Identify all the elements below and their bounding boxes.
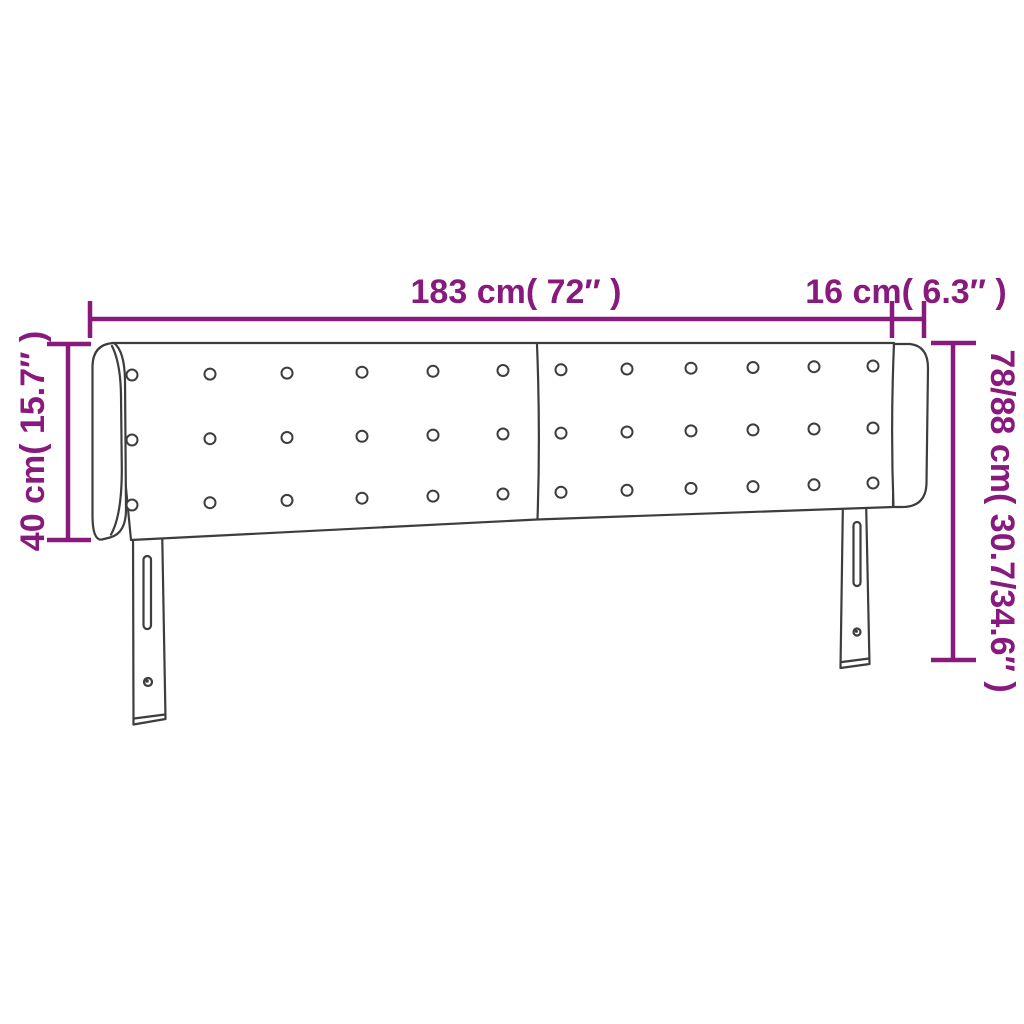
width-dimension-label: 183 cm( 72″ ) xyxy=(411,273,622,311)
total-height-dimension: 78/88 cm( 30.7/34.6″ ) xyxy=(931,343,1021,693)
tufting-button xyxy=(622,427,633,438)
tufting-button xyxy=(556,428,567,439)
tufting-button xyxy=(868,478,879,489)
tufting-button xyxy=(205,369,216,380)
tufting-button xyxy=(357,367,368,378)
tufting-button xyxy=(357,493,368,504)
tufting-button xyxy=(686,483,697,494)
tufting-button xyxy=(127,370,138,381)
tufting-button xyxy=(868,423,879,434)
tufting-button xyxy=(127,500,138,511)
tufting-button xyxy=(428,430,439,441)
headboard-height-label: 40 cm( 15.7″ ) xyxy=(14,331,52,551)
tufting-button xyxy=(868,361,879,372)
headboard-drawing xyxy=(93,343,929,725)
tufting-button xyxy=(556,364,567,375)
tufting-button xyxy=(282,432,293,443)
tufting-button xyxy=(622,485,633,496)
tufting-button xyxy=(428,491,439,502)
total-height-label: 78/88 cm( 30.7/34.6″ ) xyxy=(983,349,1021,692)
tufting-button xyxy=(357,431,368,442)
width-dimension: 183 cm( 72″ ) 16 cm( 6.3″ ) xyxy=(90,273,1007,338)
tufting-button xyxy=(748,481,759,492)
tufting-button xyxy=(809,361,820,372)
tufting-button xyxy=(498,489,509,500)
tufting-button xyxy=(748,424,759,435)
right-wing-panel xyxy=(892,344,928,507)
tufting-button xyxy=(809,479,820,490)
left-leg-body xyxy=(133,523,166,725)
left-leg xyxy=(133,523,166,725)
tufting-button xyxy=(428,366,439,377)
tufting-button xyxy=(686,425,697,436)
right-leg-hole-center xyxy=(855,630,858,633)
left-leg-hole-center xyxy=(145,679,149,683)
tufting-button xyxy=(748,362,759,373)
tufting-button xyxy=(498,365,509,376)
tufting-button xyxy=(205,433,216,444)
dimension-diagram: 183 cm( 72″ ) 16 cm( 6.3″ ) 40 cm( 15.7″… xyxy=(0,0,1024,1024)
tufting-button xyxy=(809,424,820,435)
tufting-button xyxy=(686,363,697,374)
tufting-button xyxy=(205,497,216,508)
tufting-button xyxy=(498,429,509,440)
tufting-button xyxy=(127,435,138,446)
right-leg xyxy=(841,498,870,668)
tufting-button xyxy=(556,487,567,498)
tufting-button xyxy=(282,368,293,379)
tufting-button xyxy=(622,364,633,375)
tufting-button xyxy=(282,495,293,506)
diagram-canvas: 183 cm( 72″ ) 16 cm( 6.3″ ) 40 cm( 15.7″… xyxy=(0,0,1024,1024)
wing-depth-dimension-label: 16 cm( 6.3″ ) xyxy=(805,273,1007,311)
headboard-height-dimension: 40 cm( 15.7″ ) xyxy=(14,331,91,551)
